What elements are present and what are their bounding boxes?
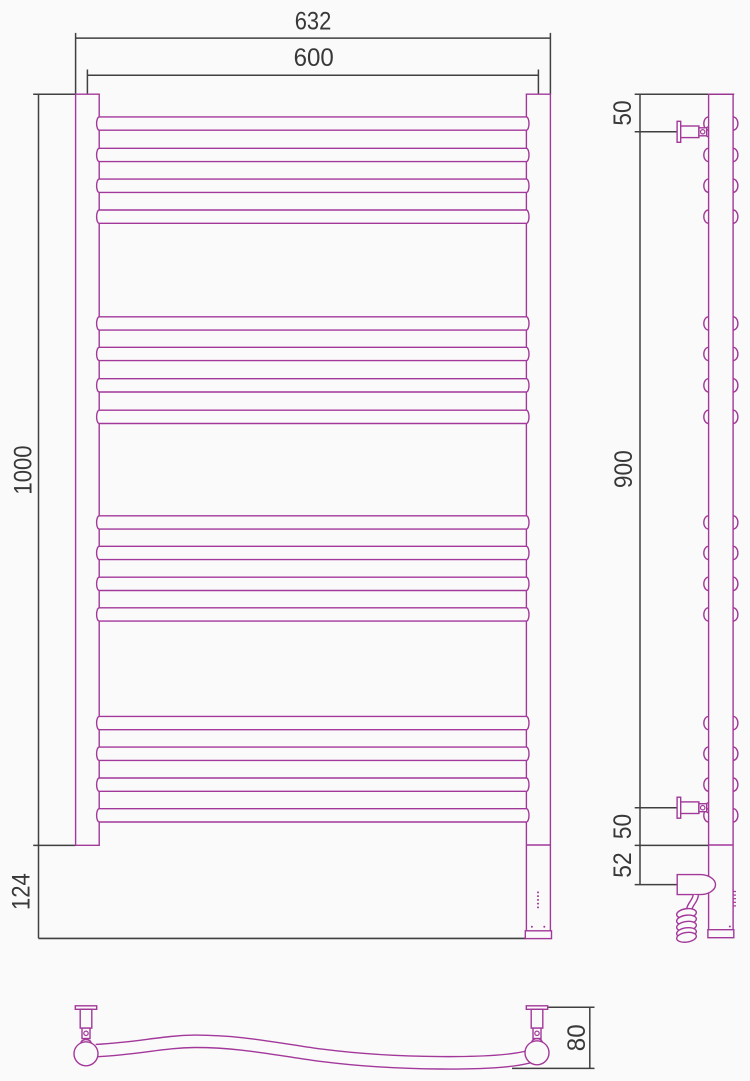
svg-text:632: 632 <box>295 7 332 35</box>
svg-text:900: 900 <box>610 450 638 488</box>
svg-text:50: 50 <box>609 814 637 839</box>
svg-text:1000: 1000 <box>10 445 38 494</box>
svg-text:50: 50 <box>609 100 637 125</box>
svg-text:52: 52 <box>609 852 637 877</box>
svg-text:80: 80 <box>563 1024 591 1051</box>
svg-text:124: 124 <box>8 873 36 910</box>
svg-text:600: 600 <box>294 44 334 72</box>
